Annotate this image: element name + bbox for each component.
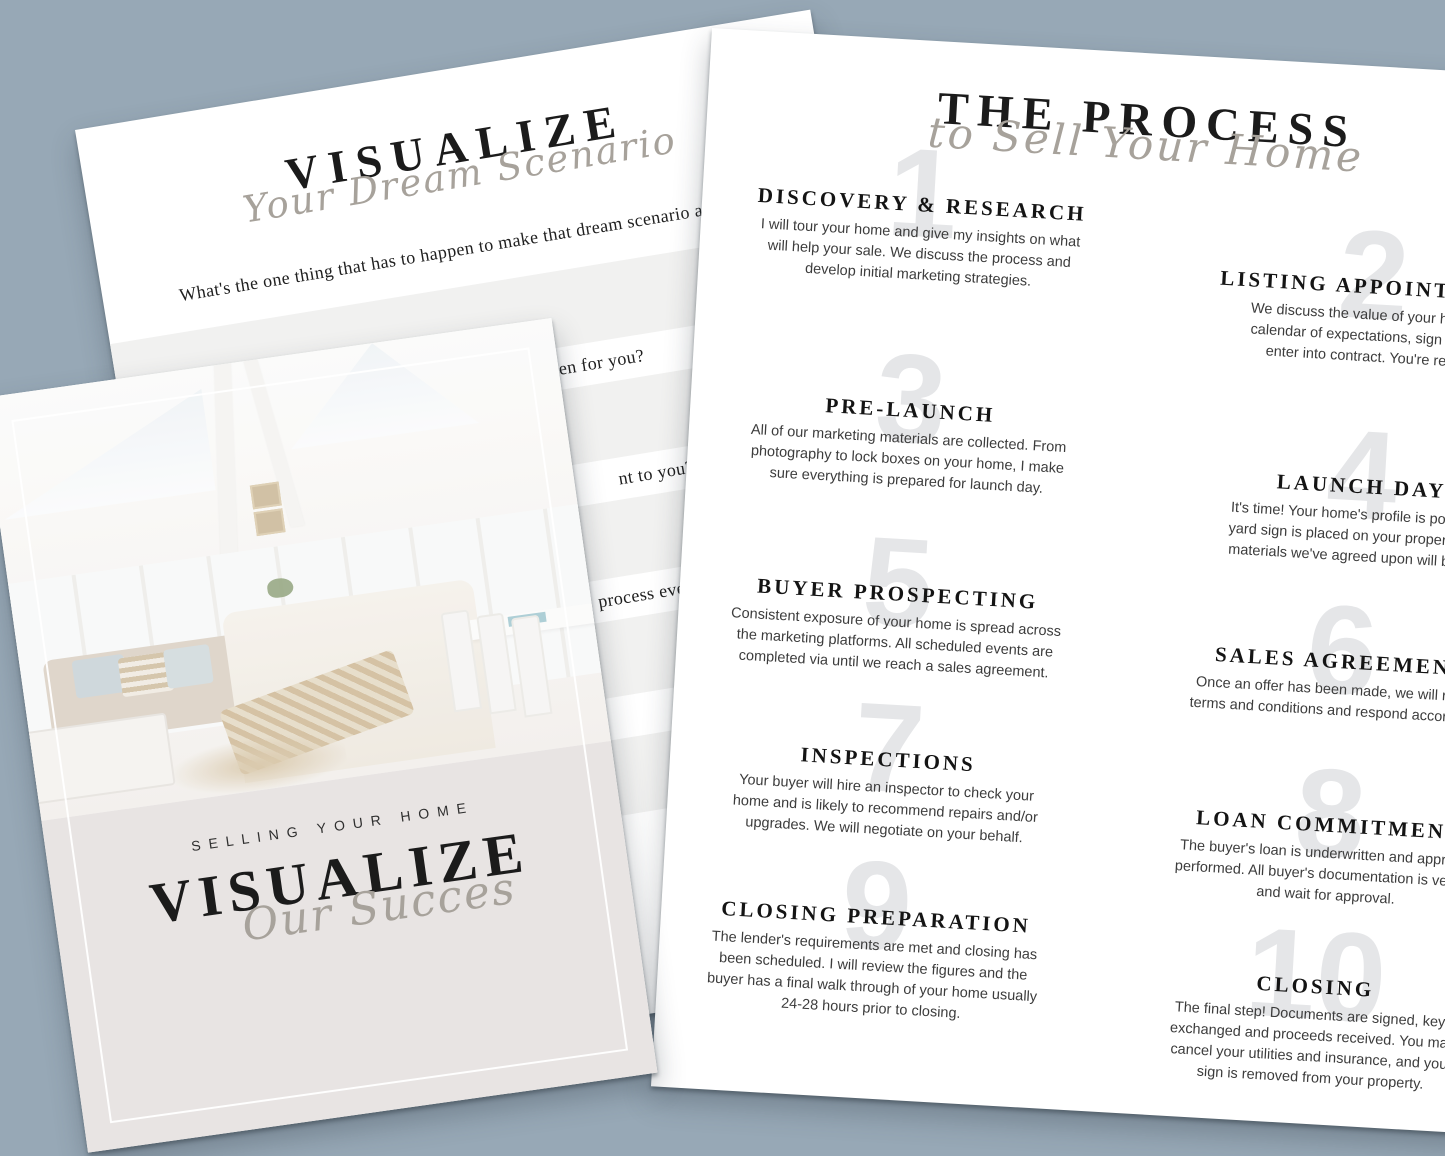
process-step-2: 2 LISTING APPOINTMENT We discuss the val… [1164, 263, 1445, 380]
process-title-block: THE PROCESS to Sell Your Home [705, 68, 1445, 195]
process-step-7: 7 INSPECTIONS Your buyer will hire an in… [674, 735, 1099, 853]
mockup-background: { "colors":{ "bg":"#97a8b6","paper":"#ff… [0, 0, 1445, 1156]
photo-overlay [0, 318, 611, 821]
partial-question: nt to you? [617, 456, 695, 489]
process-step-8: 8 LOAN COMMITMENT The buyer's loan is un… [1108, 800, 1445, 919]
process-step-1: 1 DISCOVERY & RESEARCH I will tour your … [718, 181, 1123, 298]
process-step-10: 10 CLOSING The final step! Documents are… [1087, 962, 1445, 1102]
step-body: It's time! Your home's profile is posted… [1147, 493, 1445, 580]
step-body: The final step! Documents are signed, ke… [1087, 992, 1445, 1102]
cover-page: SELLING YOUR HOME VISUALIZE Our Succes [0, 318, 657, 1153]
process-step-5: 5 BUYER PROSPECTING Consistent exposure … [683, 570, 1108, 688]
step-body: We discuss the value of your home, a cal… [1164, 294, 1445, 381]
process-step-3: 3 PRE-LAUNCH All of our marketing materi… [706, 387, 1111, 504]
process-step-6: 6 SALES AGREEMENT Once an offer has been… [1123, 637, 1445, 735]
cover-photo [0, 318, 611, 821]
step-body: The lender's requirements are met and cl… [656, 924, 1090, 1033]
process-step-4: 4 LAUNCH DAY It's time! Your home's prof… [1147, 462, 1445, 580]
process-page: THE PROCESS to Sell Your Home 1 DISCOVER… [651, 28, 1445, 1137]
step-body: Once an offer has been made, we will rev… [1123, 668, 1445, 735]
process-step-9: 9 CLOSING PREPARATION The lender's requi… [656, 893, 1092, 1033]
